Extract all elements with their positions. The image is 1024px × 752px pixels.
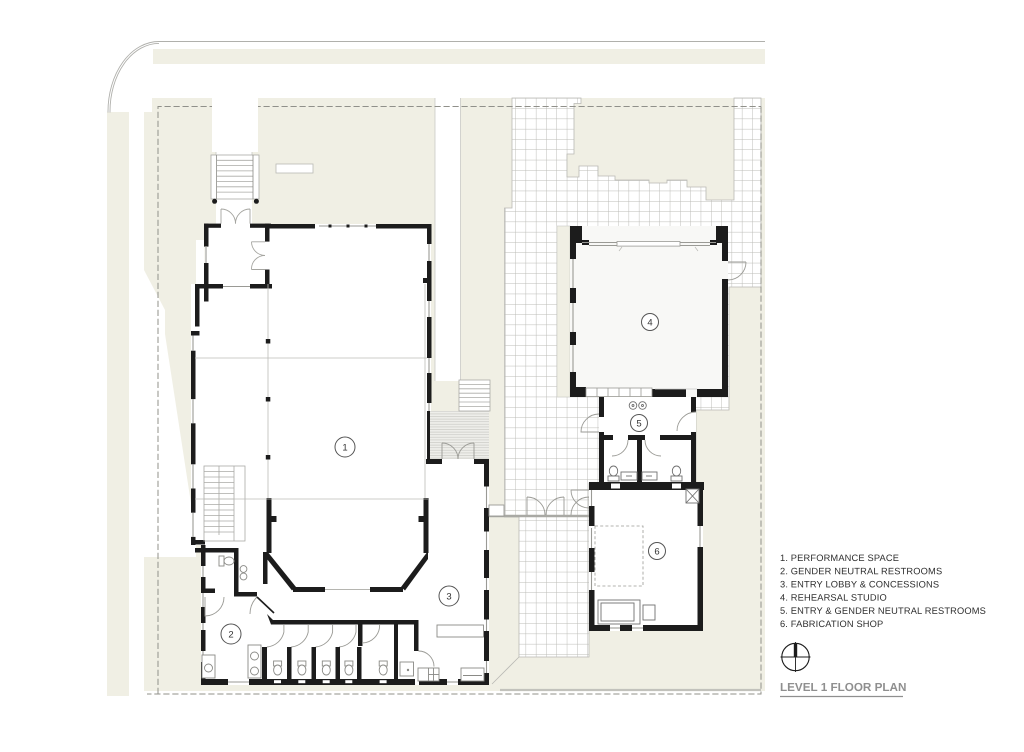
- svg-text:1. PERFORMANCE SPACE: 1. PERFORMANCE SPACE: [780, 553, 899, 563]
- svg-text:6. FABRICATION SHOP: 6. FABRICATION SHOP: [780, 619, 883, 629]
- svg-text:3: 3: [446, 592, 451, 603]
- svg-text:LEVEL 1 FLOOR PLAN: LEVEL 1 FLOOR PLAN: [780, 681, 906, 694]
- svg-text:2. GENDER NEUTRAL RESTROOMS: 2. GENDER NEUTRAL RESTROOMS: [780, 566, 942, 576]
- svg-text:4: 4: [647, 318, 652, 329]
- svg-text:1: 1: [342, 443, 347, 454]
- svg-text:2: 2: [228, 630, 233, 641]
- svg-text:5. ENTRY & GENDER NEUTRAL REST: 5. ENTRY & GENDER NEUTRAL RESTROOMS: [780, 606, 986, 616]
- svg-text:5: 5: [636, 419, 641, 430]
- svg-text:4. REHEARSAL STUDIO: 4. REHEARSAL STUDIO: [780, 593, 887, 603]
- svg-text:3. ENTRY LOBBY & CONCESSIONS: 3. ENTRY LOBBY & CONCESSIONS: [780, 579, 939, 589]
- svg-text:6: 6: [654, 547, 659, 558]
